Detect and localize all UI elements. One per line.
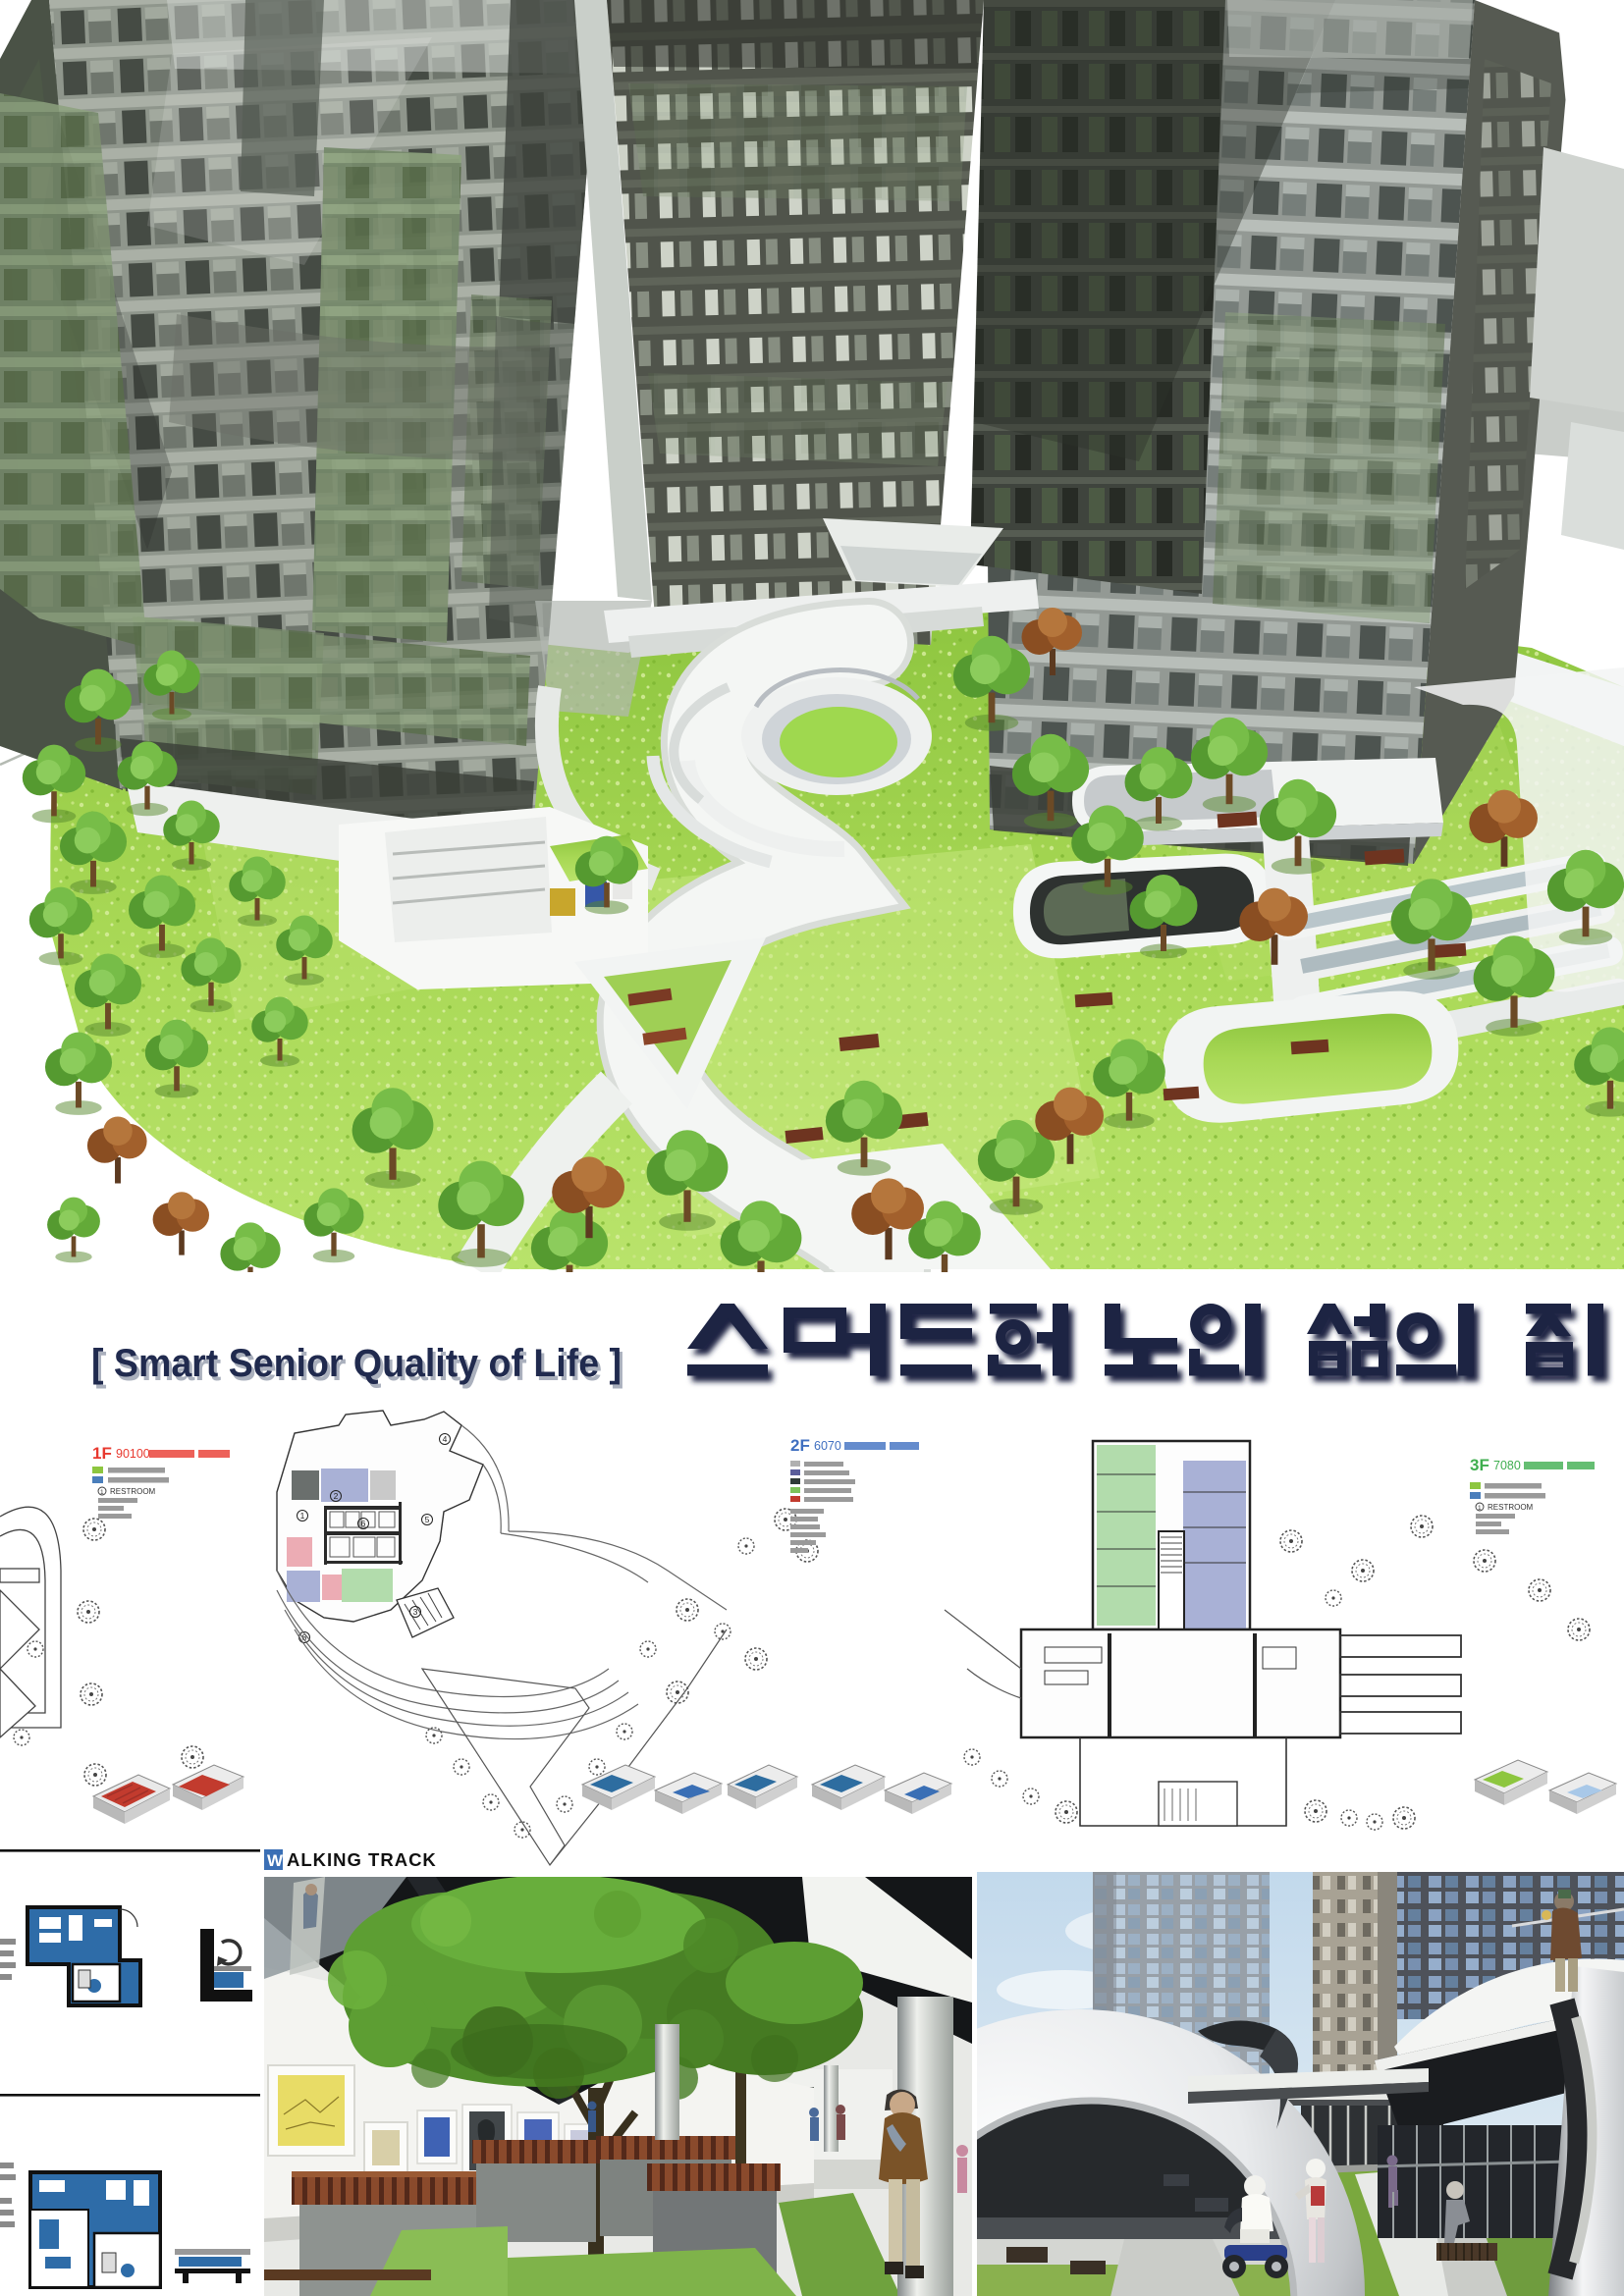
svg-text:1: 1 xyxy=(300,1511,305,1521)
svg-text:7080: 7080 xyxy=(1493,1459,1521,1472)
svg-text:RESTROOM: RESTROOM xyxy=(110,1487,156,1496)
svg-text:2: 2 xyxy=(334,1491,339,1501)
svg-text:3: 3 xyxy=(413,1607,418,1617)
svg-text:1: 1 xyxy=(100,1489,104,1496)
svg-text:4: 4 xyxy=(443,1434,448,1444)
svg-text:1F: 1F xyxy=(92,1444,112,1463)
svg-text:[ Smart Senior Quality of Life: [ Smart Senior Quality of Life ] xyxy=(91,1342,622,1385)
svg-text:6070: 6070 xyxy=(814,1439,841,1453)
svg-text:W: W xyxy=(267,1851,284,1870)
svg-text:90100: 90100 xyxy=(116,1447,150,1461)
svg-text:RESTROOM: RESTROOM xyxy=(1488,1503,1534,1512)
svg-text:3F: 3F xyxy=(1470,1456,1489,1474)
svg-text:1: 1 xyxy=(1478,1505,1482,1512)
svg-text:5: 5 xyxy=(425,1515,430,1524)
svg-text:2F: 2F xyxy=(790,1436,810,1455)
svg-text:ALKING TRACK: ALKING TRACK xyxy=(287,1849,437,1870)
svg-text:6: 6 xyxy=(361,1519,366,1528)
